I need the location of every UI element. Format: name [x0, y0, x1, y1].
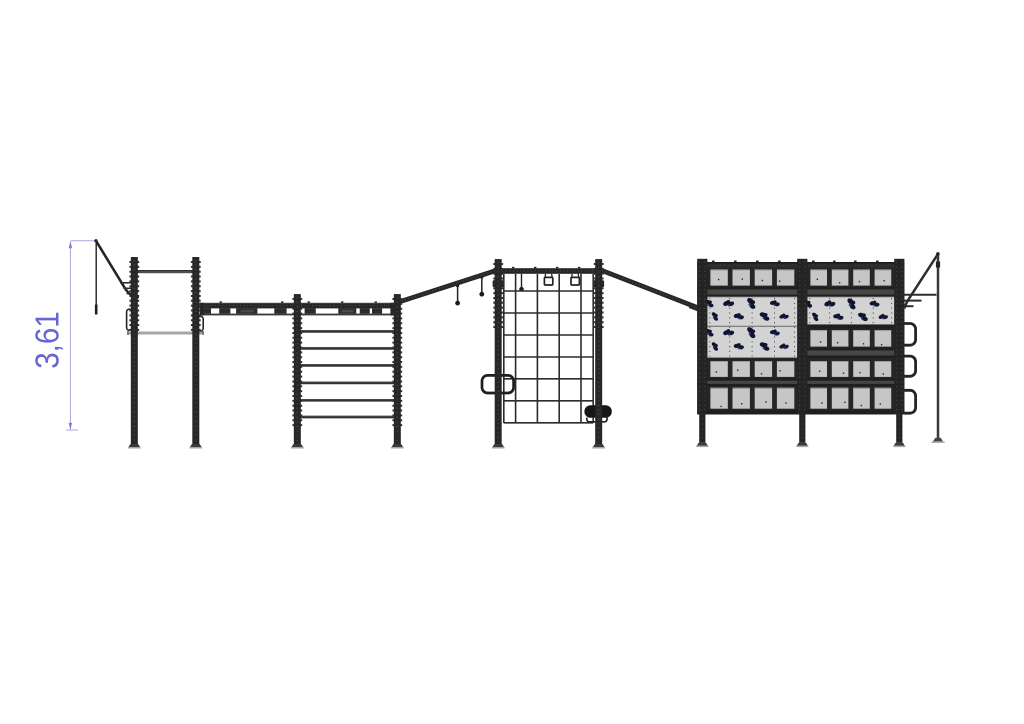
svg-text:3,61: 3,61	[29, 311, 66, 369]
